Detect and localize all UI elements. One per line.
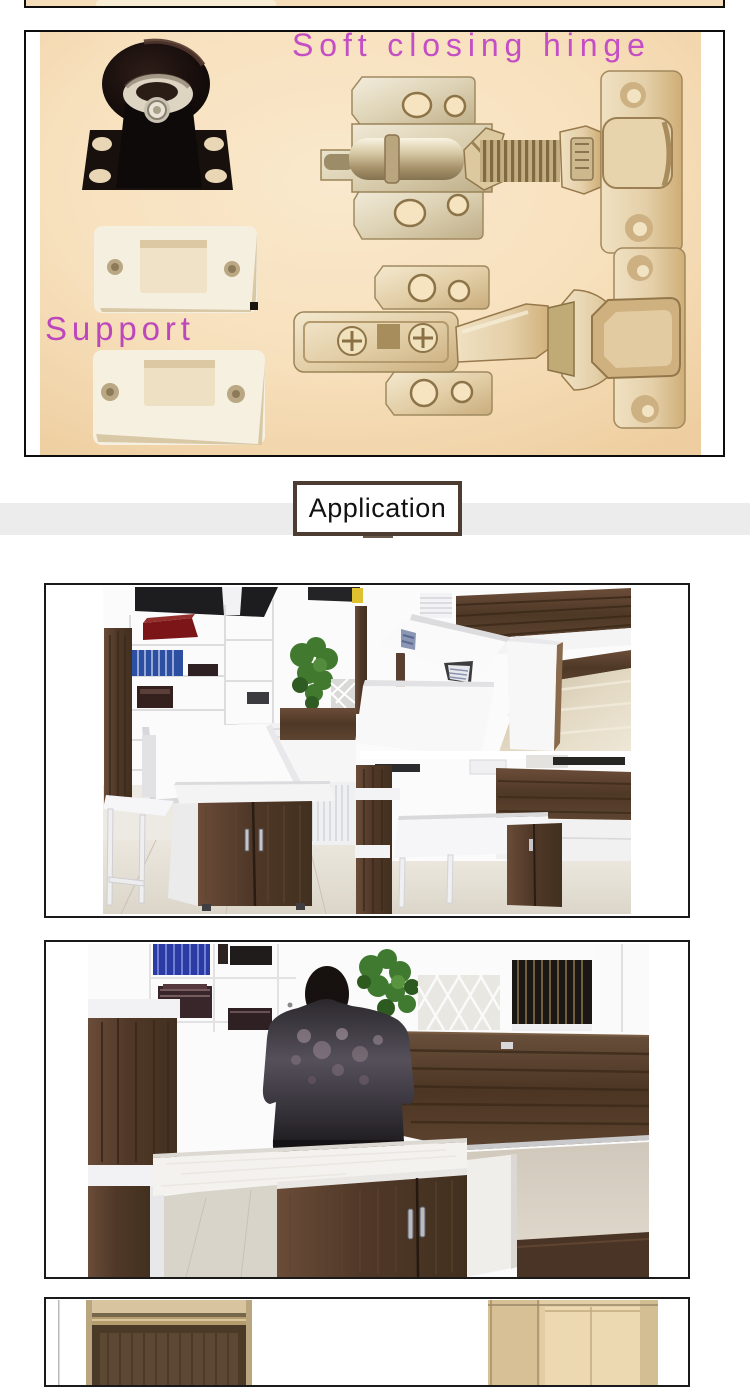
svg-text:Support: Support — [45, 310, 195, 347]
svg-text:Soft closing hinge: Soft closing hinge — [292, 32, 651, 63]
